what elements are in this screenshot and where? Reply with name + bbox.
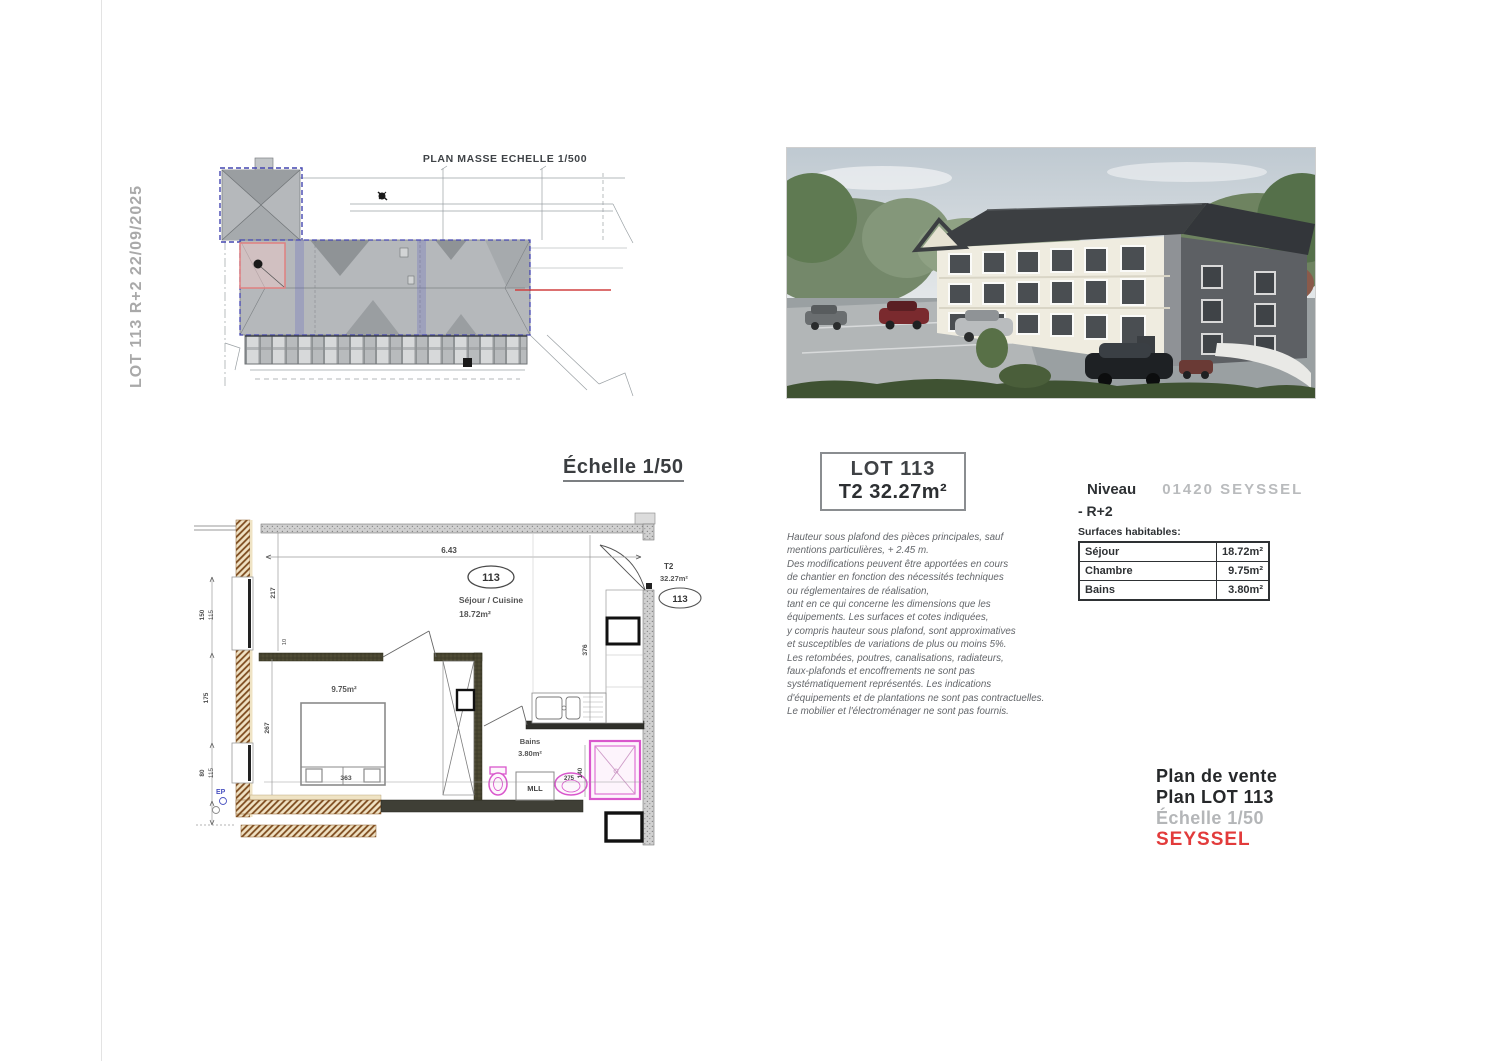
dimension-labels: 6.43 217 10 267 376 140 363 275 150 115 … xyxy=(199,546,589,782)
niveau-label: Niveau xyxy=(1087,481,1136,498)
exterior-walls xyxy=(194,513,655,845)
disclaimer-line: tant en ce qui concerne les dimensions q… xyxy=(787,598,1057,611)
entry-door xyxy=(600,545,645,590)
disclaimer-line: Des modifications peuvent être apportées… xyxy=(787,558,1057,571)
ep-mark: EP xyxy=(213,789,227,814)
table-row: Bains 3.80m² xyxy=(1079,581,1269,601)
svg-text:115: 115 xyxy=(208,767,215,778)
disclaimer-line: équipements. Les surfaces et cotes indiq… xyxy=(787,611,1057,624)
floor-plan-title: Échelle 1/50 xyxy=(563,456,684,482)
svg-text:363: 363 xyxy=(340,775,352,782)
sejour-area: 18.72m² xyxy=(459,609,491,619)
site-plan: PLAN MASSE ECHELLE 1/500 xyxy=(195,148,640,410)
table-row: Séjour 18.72m² xyxy=(1079,542,1269,562)
plan-de-vente-sheet: { "sheet": { "vertical_label": "LOT 113 … xyxy=(0,0,1500,1061)
disclaimer-line: Hauteur sous plafond des pièces principa… xyxy=(787,531,1057,544)
svg-text:140: 140 xyxy=(577,767,584,778)
type-label: T2 xyxy=(664,562,674,571)
surfaces-label: Surfaces habitables: xyxy=(1078,526,1318,538)
bed xyxy=(301,703,385,785)
svg-text:267: 267 xyxy=(264,722,271,734)
area-cell: 3.80m² xyxy=(1217,581,1269,601)
level-label: - R+2 xyxy=(1078,503,1318,519)
sheet-edge-line xyxy=(101,0,102,1061)
site-plan-title: PLAN MASSE ECHELLE 1/500 xyxy=(423,153,587,165)
disclaimer-line: et susceptibles de variations de plus ou… xyxy=(787,638,1057,651)
bathroom-fixtures xyxy=(489,741,640,800)
table-row: Chambre 9.75m² xyxy=(1079,562,1269,581)
city-label: 01420 SEYSSEL xyxy=(1162,481,1303,498)
type-area: 32.27m² xyxy=(660,574,688,583)
chambre-area: 9.75m² xyxy=(331,685,357,694)
disclaimer-line: y compris hauteur sous plafond, sont app… xyxy=(787,625,1057,638)
footer-plan-lot: Plan LOT 113 xyxy=(1156,787,1277,808)
sales-footer: Plan de vente Plan LOT 113 Échelle 1/50 … xyxy=(1156,766,1277,850)
vertical-sheet-label: LOT 113 R+2 22/09/2025 xyxy=(128,185,146,388)
disclaimer-line: d'équipements et de plantations ne sont … xyxy=(787,692,1057,705)
room-cell: Chambre xyxy=(1079,562,1217,581)
niveau-section: Niveau 01420 SEYSSEL - R+2 Surfaces habi… xyxy=(1078,481,1318,601)
site-plan-main-building xyxy=(240,240,530,335)
unit-number-oval-right: 113 xyxy=(672,594,687,605)
svg-text:80: 80 xyxy=(199,769,206,777)
disclaimer-line: systématiquement représentés. Les indica… xyxy=(787,678,1057,691)
disclaimer-line: ou réglementaires de réalisation, xyxy=(787,585,1057,598)
building-photo xyxy=(786,147,1316,399)
bains-area: 3.80m² xyxy=(518,749,542,758)
svg-text:EP: EP xyxy=(216,789,226,796)
disclaimer-line: faux-plafonds et encoffrements ne sont p… xyxy=(787,665,1057,678)
footer-echelle: Échelle 1/50 xyxy=(1156,808,1277,829)
site-plan-north-symbol xyxy=(378,192,387,200)
room-cell: Séjour xyxy=(1079,542,1217,562)
washer-label: MLL xyxy=(527,784,543,793)
lot-number: LOT 113 xyxy=(824,458,962,481)
svg-text:6.43: 6.43 xyxy=(441,546,457,555)
site-plan-left-wing xyxy=(220,158,302,242)
svg-text:150: 150 xyxy=(199,609,206,620)
footer-city: SEYSSEL xyxy=(1156,829,1277,850)
svg-text:175: 175 xyxy=(203,692,210,703)
area-cell: 18.72m² xyxy=(1217,542,1269,562)
bains-label: Bains xyxy=(520,737,540,746)
svg-text:115: 115 xyxy=(208,609,215,620)
sejour-label: Séjour / Cuisine xyxy=(459,595,524,605)
closet xyxy=(443,661,474,795)
building-render xyxy=(787,148,1315,398)
site-plan-parking xyxy=(245,336,527,367)
footer-plan-de-vente: Plan de vente xyxy=(1156,766,1277,787)
disclaimer-text: Hauteur sous plafond des pièces principa… xyxy=(787,531,1057,719)
room-cell: Bains xyxy=(1079,581,1217,601)
svg-text:275: 275 xyxy=(564,776,575,782)
lot-info-box: LOT 113 T2 32.27m² xyxy=(820,452,966,511)
disclaimer-line: Les retombées, poutres, canalisations, r… xyxy=(787,652,1057,665)
floor-plan: MLL 6.43 217 10 267 376 140 363 275 150 … xyxy=(186,495,706,867)
area-cell: 9.75m² xyxy=(1217,562,1269,581)
disclaimer-line: de chantier en fonction des nécessités t… xyxy=(787,571,1057,584)
surfaces-table: Séjour 18.72m² Chambre 9.75m² Bains 3.80… xyxy=(1078,541,1270,601)
svg-text:10: 10 xyxy=(282,639,288,645)
unit-number-oval: 113 xyxy=(482,572,500,584)
svg-text:376: 376 xyxy=(582,644,589,656)
lot-type-area: T2 32.27m² xyxy=(824,481,962,504)
disclaimer-line: Le mobilier et l'électroménager ne sont … xyxy=(787,705,1057,718)
svg-text:217: 217 xyxy=(270,587,277,599)
disclaimer-line: mentions particulières, + 2.45 m. xyxy=(787,544,1057,557)
